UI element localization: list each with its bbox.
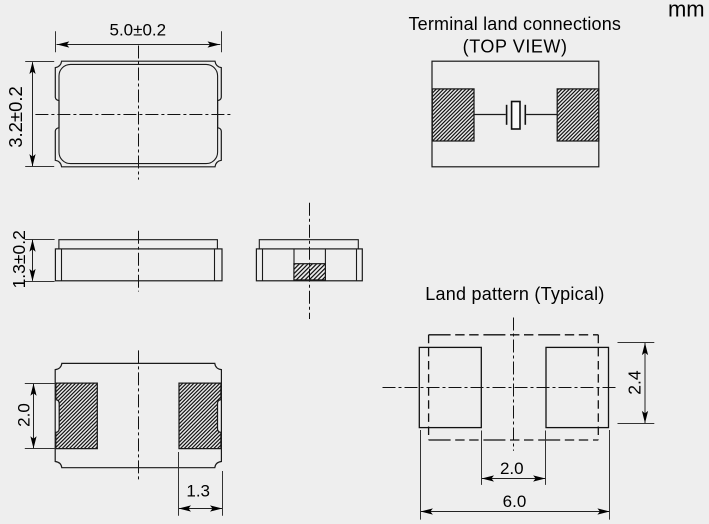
svg-text:2.0: 2.0: [15, 403, 34, 427]
svg-text:mm: mm: [668, 0, 705, 22]
svg-text:1.3±0.2: 1.3±0.2: [9, 230, 29, 288]
svg-text:1.3: 1.3: [186, 481, 210, 500]
svg-text:(TOP VIEW): (TOP VIEW): [463, 37, 568, 57]
svg-text:Terminal land connections: Terminal land connections: [408, 14, 621, 34]
svg-text:6.0: 6.0: [503, 492, 527, 511]
svg-text:5.0±0.2: 5.0±0.2: [109, 20, 166, 39]
svg-text:2.4: 2.4: [624, 370, 644, 395]
svg-text:2.0: 2.0: [500, 459, 524, 478]
svg-text:Land pattern (Typical): Land pattern (Typical): [425, 284, 604, 304]
svg-text:3.2±0.2: 3.2±0.2: [5, 86, 26, 148]
